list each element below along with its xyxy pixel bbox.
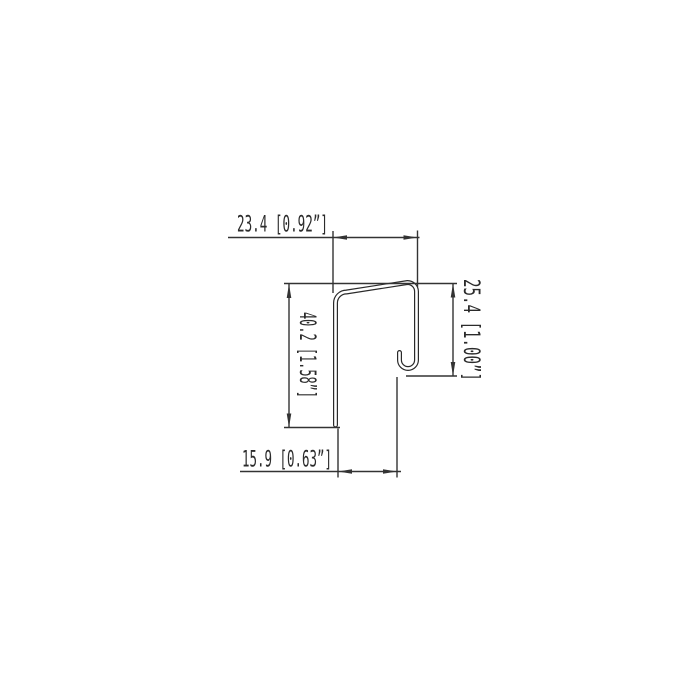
arrowhead-left-icon (338, 469, 352, 474)
arrowhead-left-icon (333, 235, 347, 240)
overall-height-label: 40.2 [1.58”] (294, 312, 319, 398)
profile-core (336, 283, 417, 426)
arrowhead-up-icon (451, 284, 456, 298)
profile-outline (336, 283, 417, 426)
technical-drawing: 23.4 [0.92”] 40.2 [1.58”] 25.4 [1.00”] 1… (0, 0, 700, 700)
bottom-opening-label: 15.9 [0.63”] (242, 448, 332, 473)
profile-cross-section (336, 283, 417, 426)
arrowhead-down-icon (451, 362, 456, 376)
arrowhead-down-icon (287, 414, 292, 428)
dimension-overall-height: 40.2 [1.58”] (284, 284, 340, 428)
arrowhead-right-icon (404, 235, 418, 240)
right-height-label: 25.4 [1.00”] (458, 279, 483, 381)
arrowhead-right-icon (383, 469, 397, 474)
top-width-label: 23.4 [0.92”] (237, 213, 328, 238)
drawing-canvas: 23.4 [0.92”] 40.2 [1.58”] 25.4 [1.00”] 1… (0, 0, 700, 700)
arrowhead-up-icon (287, 284, 292, 298)
dimension-top-width: 23.4 [0.92”] (228, 213, 420, 294)
